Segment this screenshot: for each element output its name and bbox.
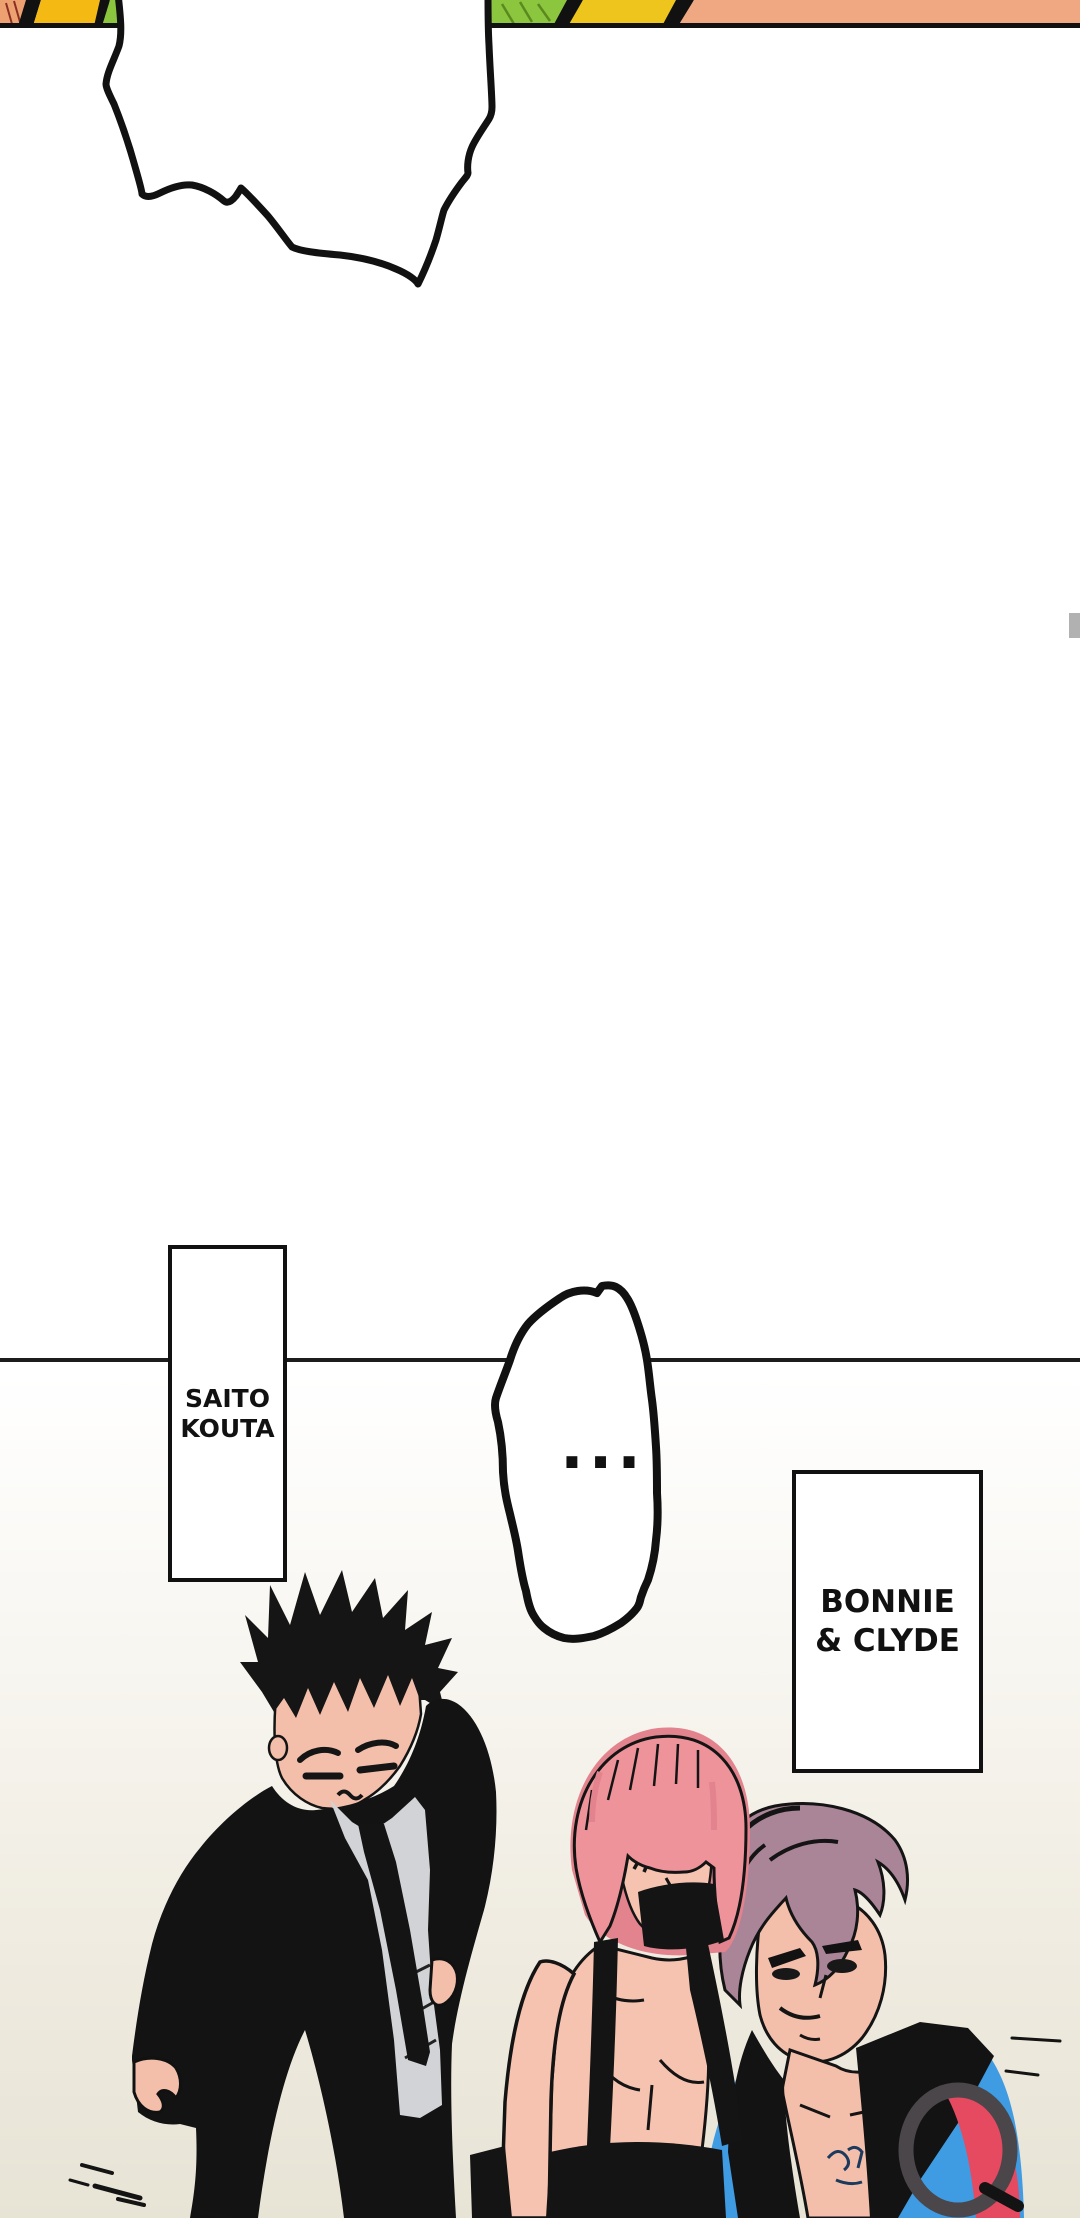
clyde-right-eye: [827, 1959, 857, 1973]
large-speech-bubble-outline: [106, 0, 492, 284]
ellipsis-dialogue-text: ...: [548, 1396, 658, 1476]
character-saito: [132, 1570, 497, 2218]
comic-page: SAITO KOUTA BONNIE & CLYDE ...: [0, 0, 1080, 2218]
bonnie-waistband: [546, 2142, 726, 2218]
panel-strip-right: [487, 0, 1080, 28]
bonnie-hair-shade: [712, 1782, 714, 1830]
scrollbar-thumb[interactable]: [1069, 613, 1080, 638]
clothing-wedge: [470, 2146, 512, 2218]
name-box-saito-line2: KOUTA: [180, 1414, 274, 1444]
name-box-bonnie-clyde: BONNIE & CLYDE: [792, 1470, 983, 1773]
bonnie-choker: [638, 1882, 724, 1949]
saito-hair: [240, 1570, 458, 1718]
large-speech-bubble: [0, 0, 520, 300]
name-box-saito-line1: SAITO: [185, 1384, 270, 1414]
clyde-left-eye: [772, 1968, 800, 1980]
character-clyde: [702, 1804, 1024, 2218]
name-box-bonnie-line2: & CLYDE: [815, 1622, 960, 1661]
saito-right-eye: [360, 1766, 394, 1770]
name-box-saito-kouta: SAITO KOUTA: [168, 1245, 287, 1582]
name-box-bonnie-line1: BONNIE: [820, 1583, 955, 1622]
saito-ear: [269, 1736, 287, 1760]
